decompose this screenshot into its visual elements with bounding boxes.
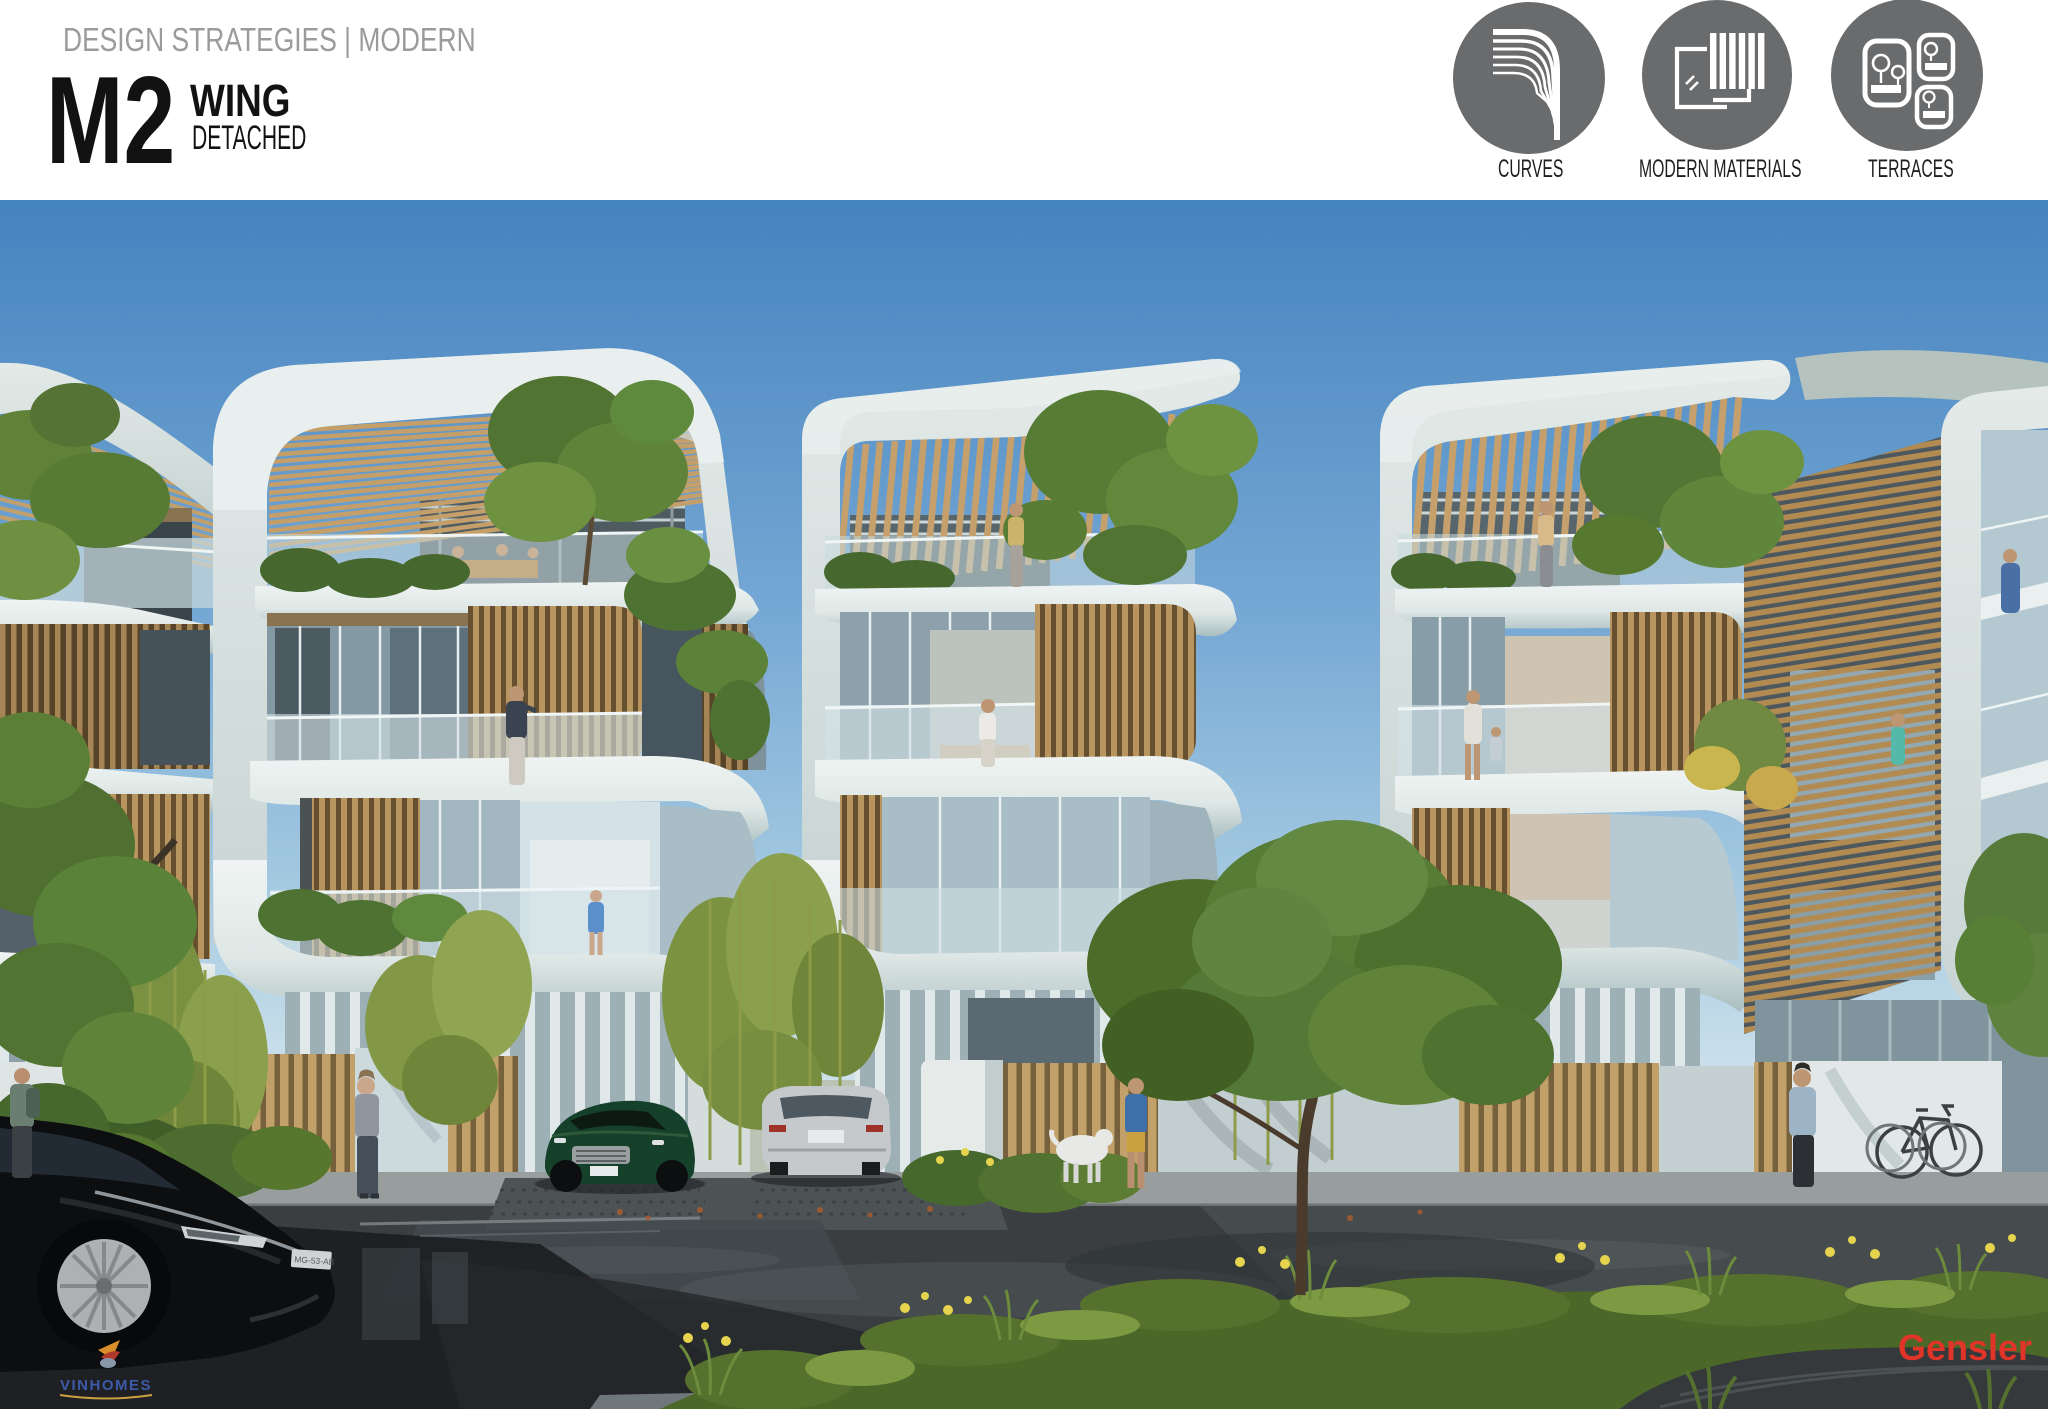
svg-text:Gensler: Gensler bbox=[1898, 1327, 2032, 1368]
svg-text:VINHOMES: VINHOMES bbox=[60, 1377, 152, 1394]
